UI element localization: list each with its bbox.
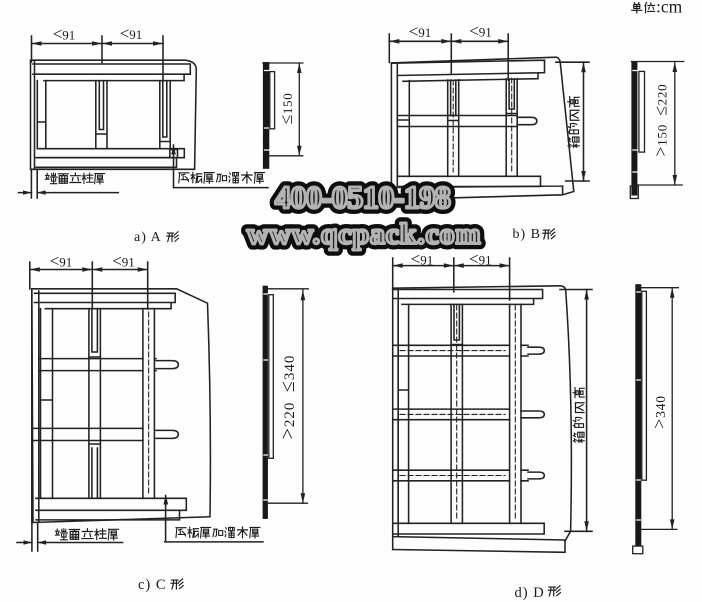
- svg-text:<91: <91: [50, 251, 73, 270]
- svg-text:<91: <91: [112, 251, 135, 270]
- svg-text:>220 ≤340: >220 ≤340: [277, 355, 299, 440]
- svg-text::cm: :cm: [656, 0, 683, 17]
- svg-text:<91: <91: [469, 22, 492, 41]
- svg-text:<91: <91: [411, 250, 434, 269]
- svg-text:b) B: b) B: [513, 227, 542, 242]
- svg-text:d) D: d) D: [515, 585, 545, 601]
- svg-text:www.qcpack.com: www.qcpack.com: [247, 218, 482, 251]
- svg-text:>150 ≤220: >150 ≤220: [651, 84, 671, 157]
- svg-text:<91: <91: [120, 24, 143, 43]
- svg-text:c) C: c) C: [138, 577, 167, 593]
- svg-text:400-0510-198: 400-0510-198: [275, 179, 450, 215]
- svg-text:a) A: a) A: [134, 230, 162, 245]
- svg-text:>340: >340: [649, 395, 669, 429]
- svg-text:<91: <91: [409, 22, 432, 41]
- svg-text:≤150: ≤150: [276, 93, 296, 125]
- svg-text:<91: <91: [53, 24, 76, 43]
- svg-text:<91: <91: [469, 250, 492, 269]
